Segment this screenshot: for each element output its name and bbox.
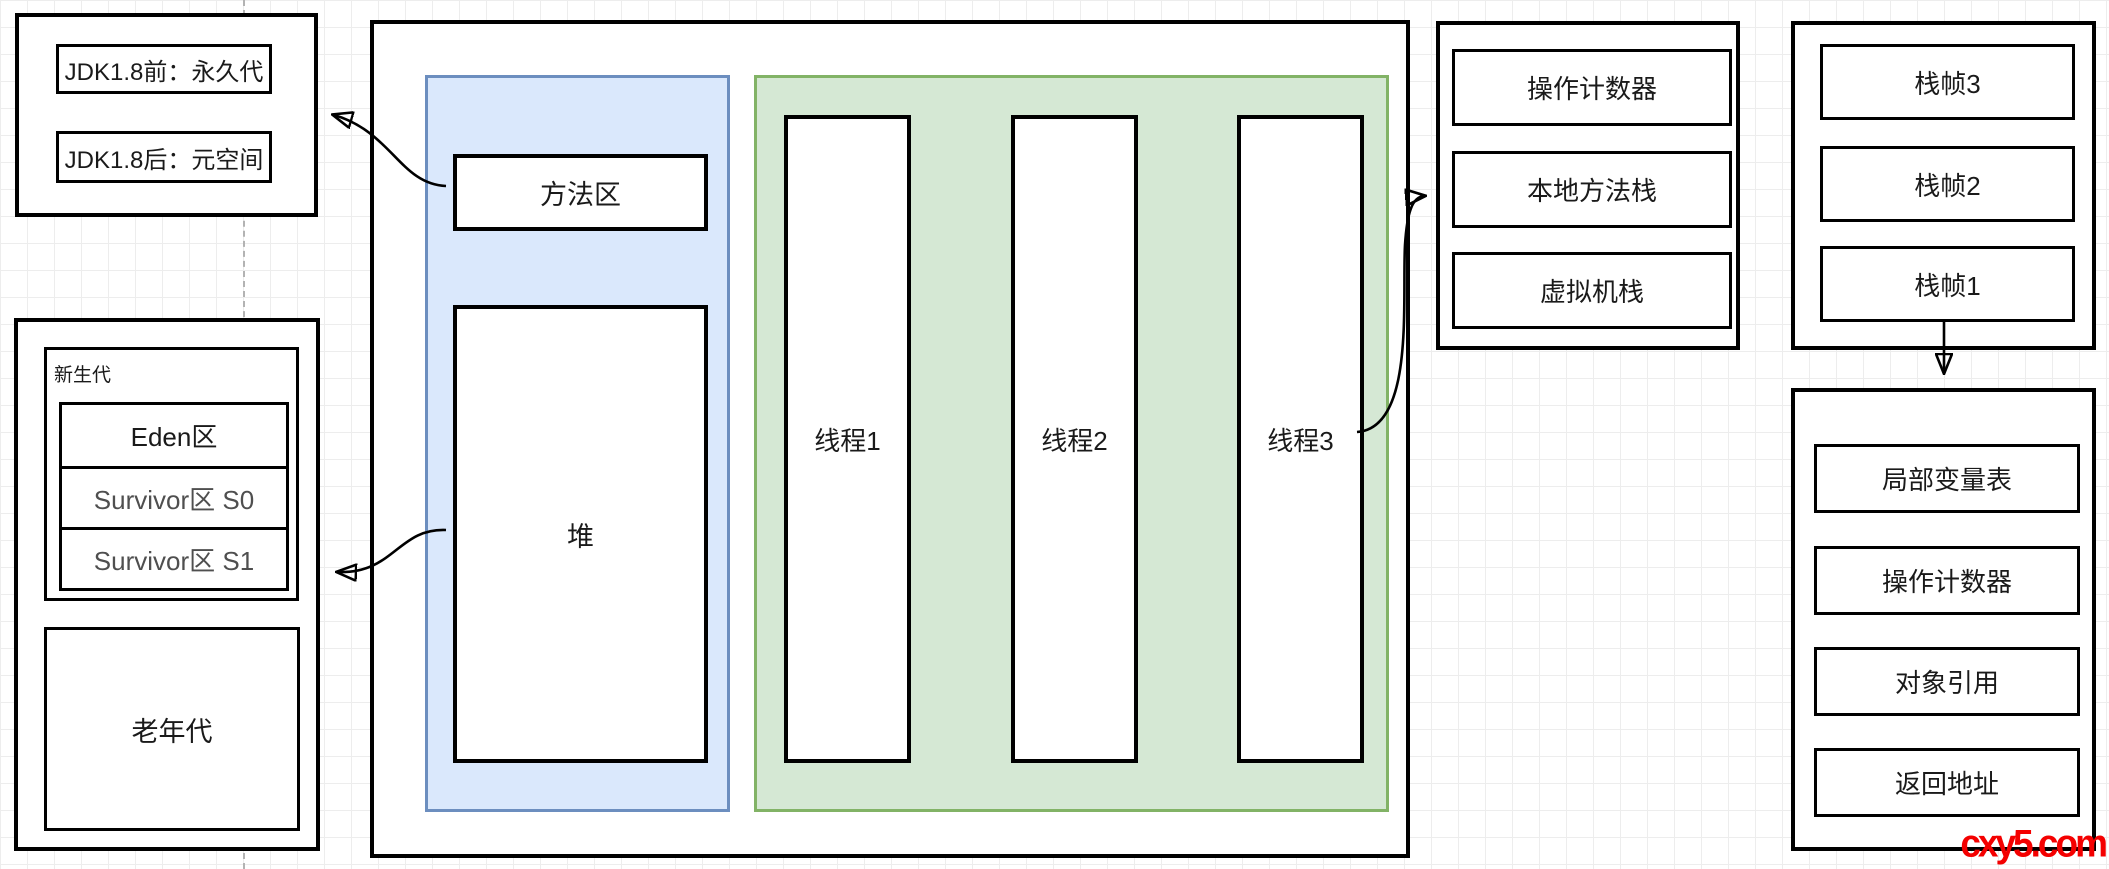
heap-box: 堆 xyxy=(453,305,708,763)
local-variable-table-box: 局部变量表 xyxy=(1814,444,2080,513)
diagram-canvas: JDK1.8前：永久代 JDK1.8后：元空间 新生代 Eden区 Surviv… xyxy=(0,0,2109,869)
jvm-runtime-box: 方法区 堆 线程1 线程2 线程3 xyxy=(370,20,1410,858)
watermark-text: cxy5.com xyxy=(1985,823,2105,865)
native-method-stack-box: 本地方法栈 xyxy=(1452,151,1732,228)
eden-row: Eden区 xyxy=(62,405,286,466)
stack-frame-3-box: 栈帧3 xyxy=(1820,44,2075,120)
heap-generations-box: 新生代 Eden区 Survivor区 S0 Survivor区 S1 老年代 xyxy=(14,318,320,851)
object-reference-box: 对象引用 xyxy=(1814,647,2080,716)
shared-memory-region: 方法区 堆 xyxy=(425,75,730,812)
stack-frame-1-box: 栈帧1 xyxy=(1820,246,2075,322)
old-generation-box: 老年代 xyxy=(44,627,300,831)
program-counter-box: 操作计数器 xyxy=(1452,49,1732,126)
vm-stack-box: 虚拟机栈 xyxy=(1452,252,1732,329)
new-generation-label: 新生代 xyxy=(54,360,144,386)
thread-stacks-box: 操作计数器 本地方法栈 虚拟机栈 xyxy=(1436,21,1740,350)
operand-counter-box: 操作计数器 xyxy=(1814,546,2080,615)
threads-region: 线程1 线程2 线程3 xyxy=(754,75,1389,812)
note-jdk-before: JDK1.8前：永久代 xyxy=(56,44,272,94)
stack-frame-2-box: 栈帧2 xyxy=(1820,146,2075,222)
new-generation-box: 新生代 Eden区 Survivor区 S0 Survivor区 S1 xyxy=(44,347,299,601)
thread-1-box: 线程1 xyxy=(784,115,911,763)
new-generation-rows: Eden区 Survivor区 S0 Survivor区 S1 xyxy=(59,402,289,591)
return-address-box: 返回地址 xyxy=(1814,748,2080,817)
survivor-s1-row: Survivor区 S1 xyxy=(62,527,286,588)
thread-2-box: 线程2 xyxy=(1011,115,1138,763)
stack-frames-box: 栈帧3 栈帧2 栈帧1 xyxy=(1791,21,2096,350)
thread-3-box: 线程3 xyxy=(1237,115,1364,763)
metaspace-note-box: JDK1.8前：永久代 JDK1.8后：元空间 xyxy=(15,13,318,217)
survivor-s0-row: Survivor区 S0 xyxy=(62,466,286,527)
note-jdk-after: JDK1.8后：元空间 xyxy=(56,131,272,183)
method-area-box: 方法区 xyxy=(453,154,708,231)
frame-detail-box: 局部变量表 操作计数器 对象引用 返回地址 xyxy=(1791,388,2096,851)
